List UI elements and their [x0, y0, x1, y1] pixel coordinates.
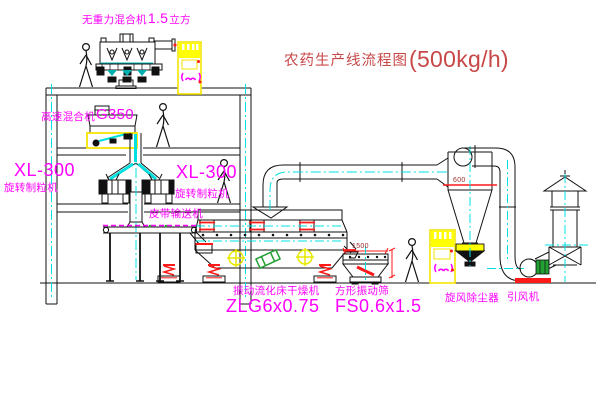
exhaust-duct — [253, 158, 448, 218]
induced-draft-fan — [515, 252, 556, 283]
granulator-right — [142, 174, 174, 203]
belt-conveyor-label: 皮带输送机 — [149, 209, 203, 220]
screen-dimension-label: 1500 — [352, 243, 369, 250]
dryer-name-label: 振动流化床干燥机 — [233, 286, 319, 297]
control-cabinet-top — [178, 42, 202, 94]
person-figure — [406, 239, 419, 282]
gravity-mixer-label: 无重力混合机 1.5 立方 — [82, 11, 191, 25]
granulator-left — [99, 174, 131, 203]
vibrating-screen — [343, 242, 395, 284]
dryer-motor-symbol — [256, 250, 280, 268]
granulator-right-name-label: 旋转制粒机 — [175, 189, 229, 200]
person-figure — [80, 44, 93, 87]
person-figure — [157, 104, 170, 147]
high-speed-mixer-label: 高速混合机 G350 — [41, 107, 134, 122]
belt-conveyor — [103, 225, 213, 281]
title-text: 农药生产线流程图 — [284, 54, 408, 69]
granulator-left-name-label: 旋转制粒机 — [4, 183, 58, 194]
drawing-title: 农药生产线流程图 (500kg/h) — [284, 48, 509, 71]
gravity-free-mixer — [96, 34, 177, 89]
granulator-right-model-label: XL-300 — [176, 163, 237, 181]
screen-model-label: FS0.6x1.5 — [335, 297, 422, 315]
cyclone-name-label: 旋风除尘器 — [445, 293, 499, 304]
fluid-bed-dryer — [158, 210, 347, 282]
fan-name-label: 引风机 — [507, 292, 539, 303]
process-flow-screenshot: 农药生产线流程图 (500kg/h) 无重力混合机 1.5 立方 高速混合机 G… — [0, 0, 600, 403]
control-cabinet-right — [430, 230, 455, 283]
discharge-chute — [127, 150, 145, 280]
screen-name-label: 方形振动筛 — [335, 286, 389, 297]
title-capacity: (500kg/h) — [409, 48, 509, 71]
chimney-stack — [544, 170, 590, 282]
granulator-left-model-label: XL-300 — [14, 161, 75, 179]
dryer-model-label: ZLG6x0.75 — [226, 297, 320, 315]
cyclone-dimension-label: 600 — [453, 177, 466, 184]
